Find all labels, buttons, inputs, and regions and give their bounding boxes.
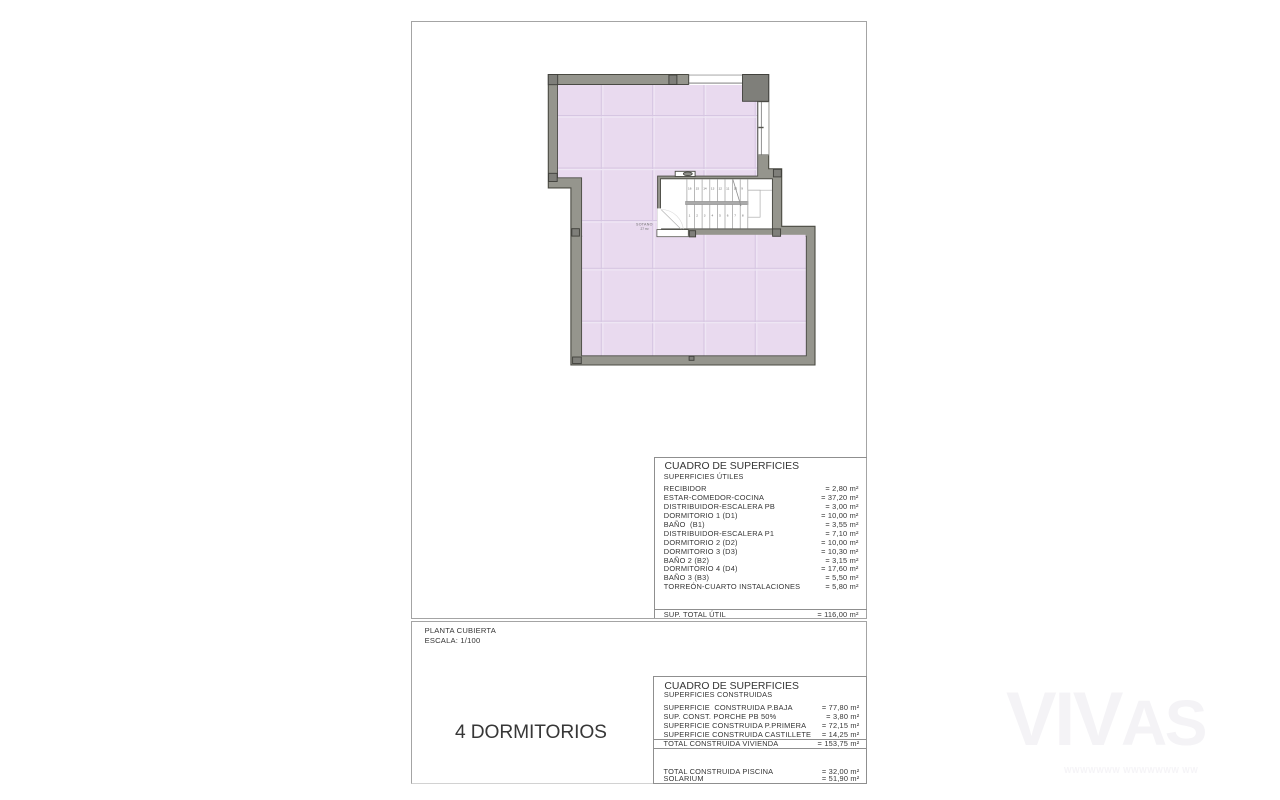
svg-text:5: 5 [719,214,721,218]
svg-text:15: 15 [696,187,700,191]
svg-text:27 m²: 27 m² [641,227,649,231]
svg-text:2: 2 [696,214,698,218]
svg-text:12: 12 [719,187,723,191]
svg-text:7: 7 [734,214,736,218]
svg-text:6: 6 [727,214,729,218]
svg-text:4: 4 [712,214,714,218]
svg-text:1: 1 [689,214,691,218]
svg-text:11: 11 [726,187,729,191]
svg-text:10: 10 [734,187,738,191]
svg-text:3: 3 [704,214,706,218]
svg-text:9: 9 [741,187,743,191]
svg-text:16: 16 [688,187,692,191]
svg-text:13: 13 [711,187,715,191]
svg-text:8: 8 [742,214,744,218]
svg-text:14: 14 [703,187,707,191]
